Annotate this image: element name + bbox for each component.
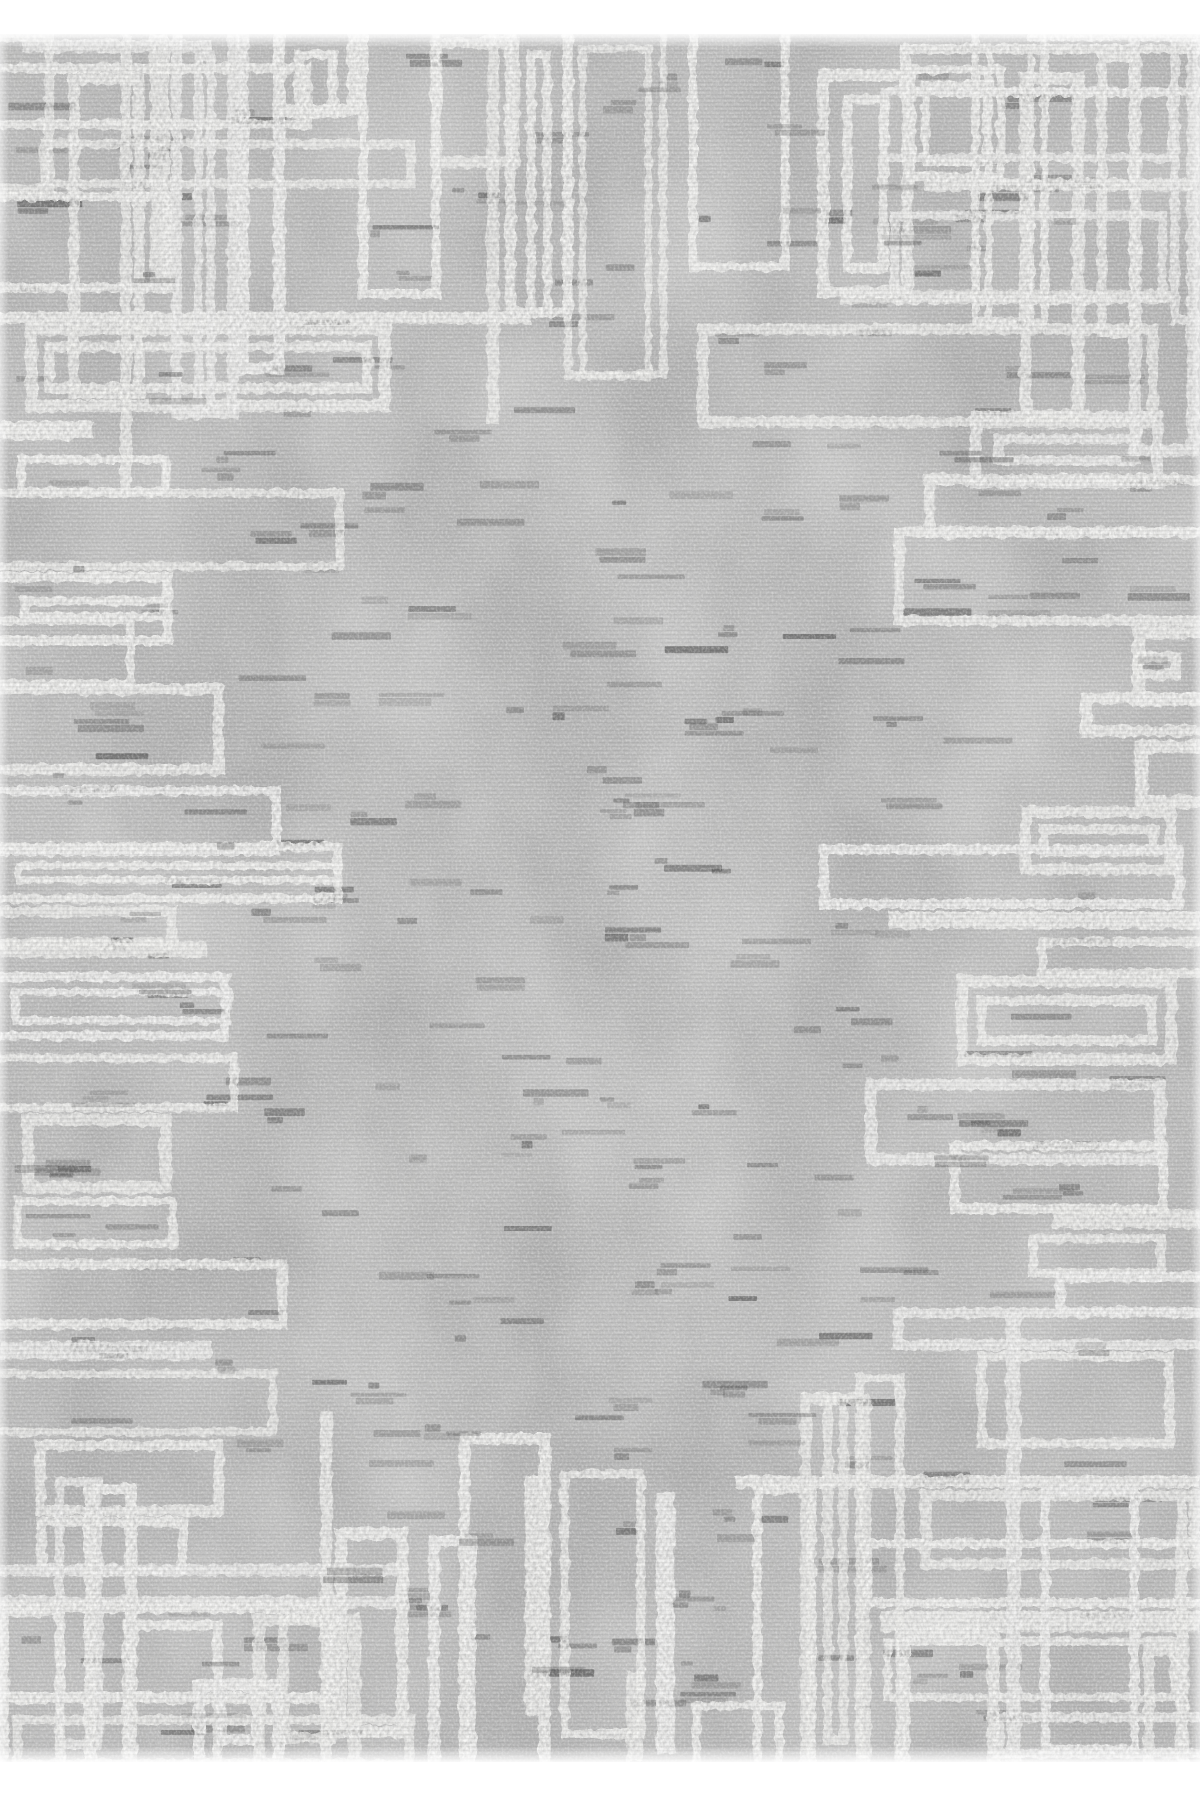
rug-graphic [0, 34, 1200, 1762]
product-photo-canvas [0, 0, 1200, 1800]
rug-image [0, 34, 1200, 1762]
fine-grain-dark-layer [0, 34, 1200, 1762]
